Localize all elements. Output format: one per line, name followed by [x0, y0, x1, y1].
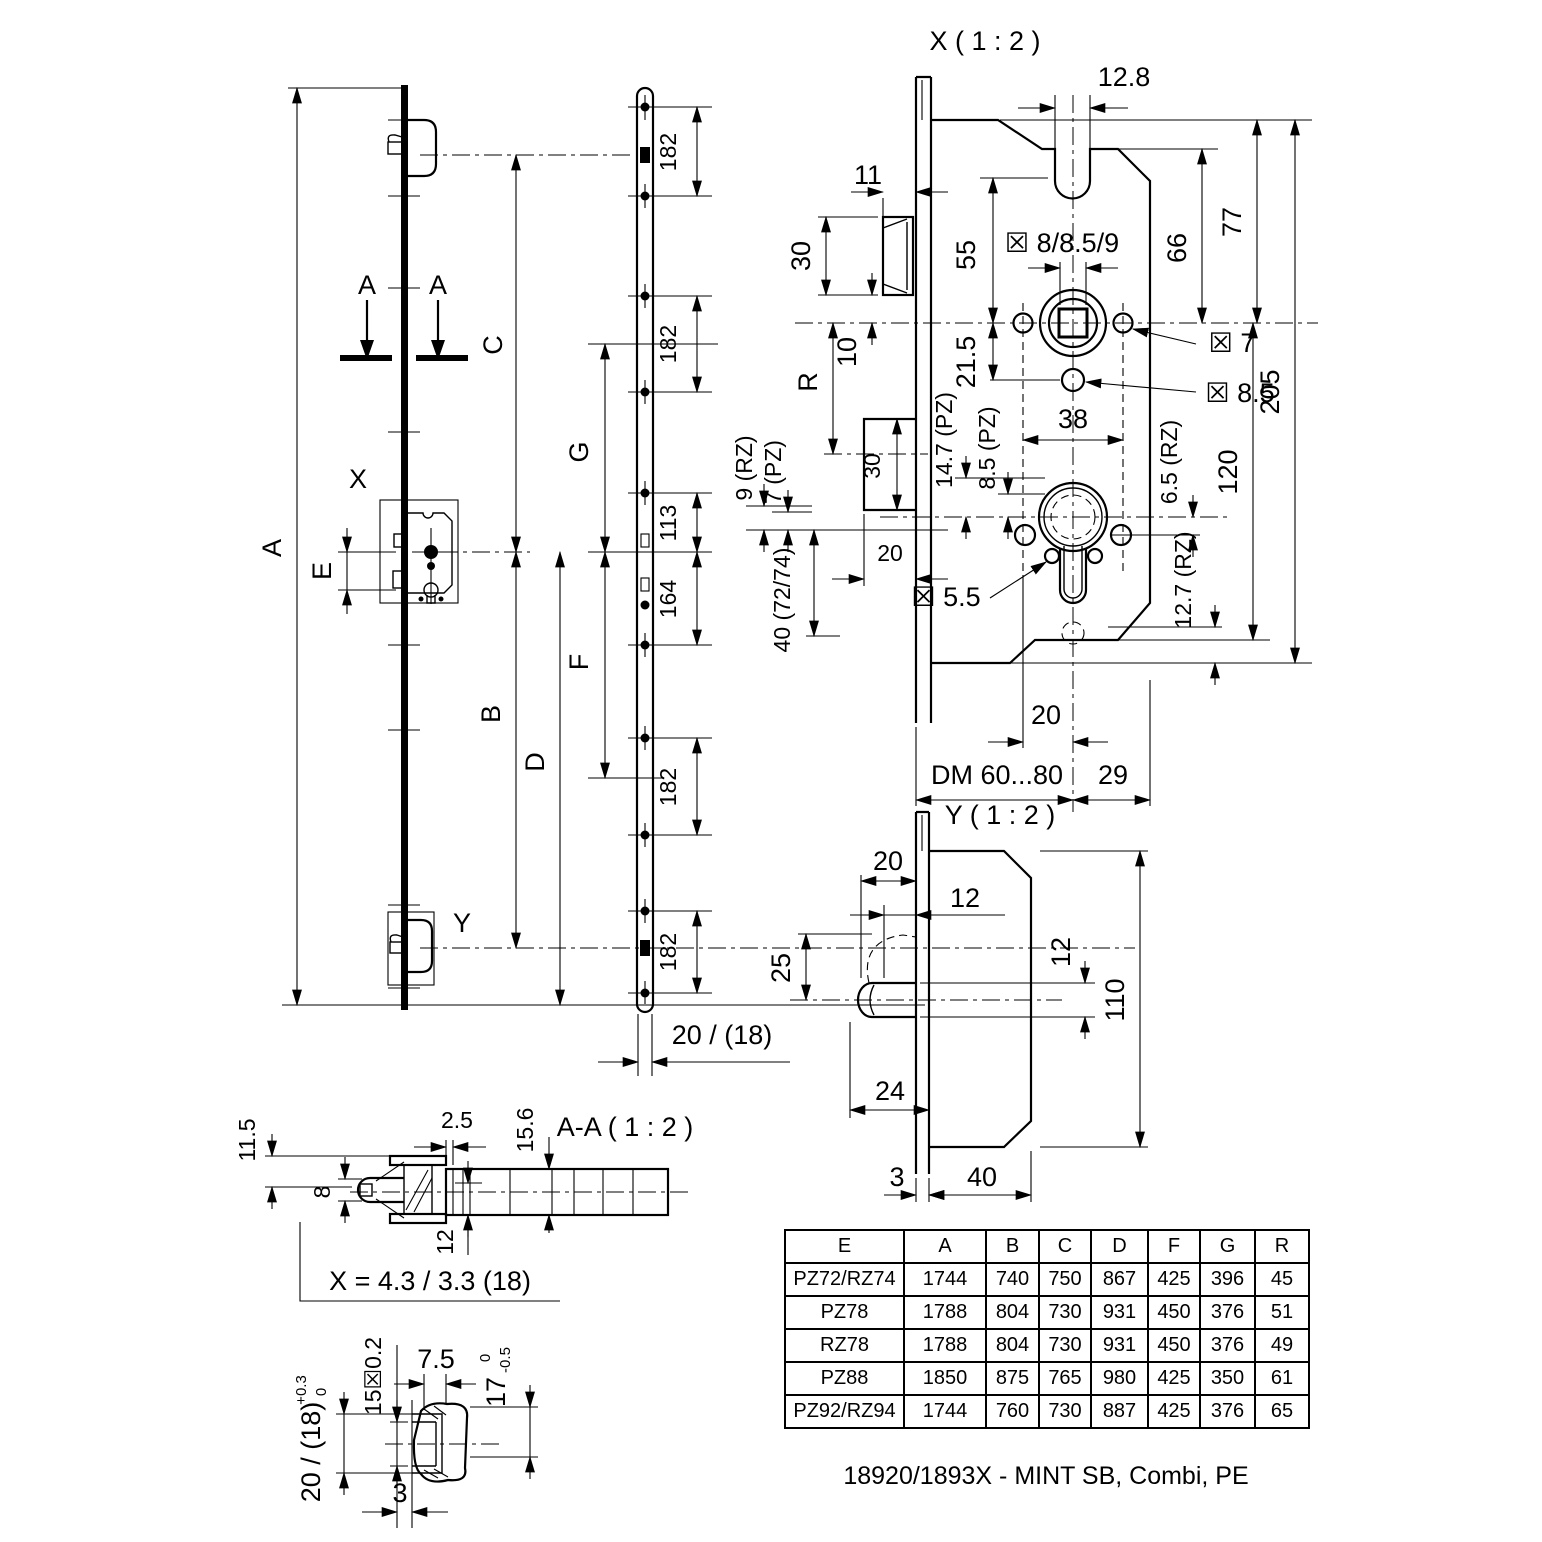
strip-dim-width: 20 / (18) — [672, 1020, 773, 1050]
det-tol17-top: 0 — [477, 1354, 494, 1362]
detail-y-label: Y — [453, 908, 471, 938]
col-header-A: A — [904, 1230, 986, 1263]
y-dim-20: 20 — [873, 846, 903, 876]
spec-table: E A B C D F G R PZ72/RZ74 1744 740 750 8… — [784, 1229, 1310, 1429]
x-dim-30-box: 30 — [859, 453, 885, 479]
table-cell: 730 — [1039, 1329, 1091, 1362]
y-dim-12-bolt: 12 — [1046, 937, 1076, 967]
table-cell: 376 — [1200, 1329, 1255, 1362]
x-dim-7-pz: 7 (PZ) — [760, 440, 786, 504]
table-cell: 1744 — [904, 1263, 986, 1296]
detail-x-label: X — [349, 464, 367, 494]
x-dim-12-7: 12.7 (RZ) — [1170, 531, 1196, 628]
aa-dim-11-5: 11.5 — [234, 1118, 260, 1161]
table-row: PZ72/RZ74 1744 740 750 867 425 396 45 — [785, 1263, 1309, 1296]
table-cell: 425 — [1148, 1395, 1200, 1428]
table-cell: PZ92/RZ94 — [785, 1395, 904, 1428]
x-dim-R: R — [793, 372, 823, 392]
drawing-caption: 18920/1893X - MINT SB, Combi, PE — [784, 1462, 1308, 1491]
drawing-canvas: A A X Y A C B D — [0, 0, 1542, 1542]
table-row: RZ78 1788 804 730 931 450 376 49 — [785, 1329, 1309, 1362]
x-dim-10: 10 — [832, 337, 862, 367]
detail-y-view: Y ( 1 : 2 ) 20 12 25 12 110 24 — [766, 800, 1148, 1202]
table-cell: 1788 — [904, 1296, 986, 1329]
table-cell: 740 — [986, 1263, 1039, 1296]
aa-dim-12: 12 — [432, 1229, 458, 1255]
dim-G: G — [564, 441, 594, 462]
table-cell: 730 — [1039, 1296, 1091, 1329]
table-cell: 45 — [1255, 1263, 1309, 1296]
x-dim-20-cyl: 20 — [1031, 700, 1061, 730]
x-dim-38: 38 — [1058, 404, 1088, 434]
groove-detail-view: 20 / (18) +0.3 0 15☒0.2 7.5 17 0 -0.5 3 — [293, 1337, 538, 1528]
col-header-C: C — [1039, 1230, 1091, 1263]
x-dim-21-5: 21.5 — [951, 336, 981, 389]
aa-title: A-A ( 1 : 2 ) — [557, 1112, 694, 1142]
x-view-title: X ( 1 : 2 ) — [929, 26, 1040, 56]
strip-dim-182-2: 182 — [655, 325, 681, 363]
col-header-R: R — [1255, 1230, 1309, 1263]
table-cell: 425 — [1148, 1362, 1200, 1395]
table-cell: 980 — [1091, 1362, 1148, 1395]
table-cell: 730 — [1039, 1395, 1091, 1428]
dim-C: C — [478, 335, 508, 355]
y-view-title: Y ( 1 : 2 ) — [945, 800, 1056, 830]
table-cell: 1744 — [904, 1395, 986, 1428]
table-row: PZ78 1788 804 730 931 450 376 51 — [785, 1296, 1309, 1329]
table-cell: 396 — [1200, 1263, 1255, 1296]
table-cell: 450 — [1148, 1329, 1200, 1362]
table-cell: 760 — [986, 1395, 1039, 1428]
col-header-B: B — [986, 1230, 1039, 1263]
x-dim-14-7: 14.7 (PZ) — [931, 392, 957, 488]
strip-dim-182-1: 182 — [655, 133, 681, 171]
det-tol-bot: 0 — [313, 1388, 330, 1396]
x-dim-9-rz: 9 (RZ) — [731, 435, 757, 500]
col-header-E: E — [785, 1230, 904, 1263]
table-cell: 425 — [1148, 1263, 1200, 1296]
section-aa-view: A-A ( 1 : 2 ) 11.5 8 2.5 15.6 — [234, 1107, 693, 1301]
table-cell: 750 — [1039, 1263, 1091, 1296]
y-dim-110: 110 — [1100, 978, 1130, 1021]
x-dim-6-5: 6.5 (RZ) — [1156, 420, 1182, 504]
x-dim-40: 40 (72/74) — [769, 548, 795, 653]
table-cell: 450 — [1148, 1296, 1200, 1329]
x-dim-20-box: 20 — [877, 540, 903, 566]
dim-D: D — [520, 752, 550, 772]
det-tol17-bot: -0.5 — [497, 1347, 514, 1373]
table-cell: 931 — [1091, 1296, 1148, 1329]
x-dim-11: 11 — [854, 160, 882, 190]
table-cell: 376 — [1200, 1395, 1255, 1428]
x-dia-5-5: ☒ 5.5 — [911, 582, 980, 612]
col-header-F: F — [1148, 1230, 1200, 1263]
aa-dim-8: 8 — [309, 1186, 335, 1199]
table-row: PZ88 1850 875 765 980 425 350 61 — [785, 1362, 1309, 1395]
aa-dim-2-5: 2.5 — [441, 1107, 473, 1133]
det-dim-15: 15☒0.2 — [360, 1337, 386, 1415]
table-cell: 61 — [1255, 1362, 1309, 1395]
detail-x-view: X ( 1 : 2 ) 12.8 ☒ 8/8.5/9 55 — [731, 26, 1318, 812]
dim-F: F — [564, 654, 594, 671]
strip-dim-164: 164 — [655, 580, 681, 619]
table-cell: RZ78 — [785, 1329, 904, 1362]
x-dim-29: 29 — [1098, 760, 1128, 790]
aa-dim-15-6: 15.6 — [512, 1108, 538, 1153]
col-header-G: G — [1200, 1230, 1255, 1263]
det-dim-3: 3 — [392, 1478, 407, 1508]
table-cell: 765 — [1039, 1362, 1091, 1395]
table-cell: 65 — [1255, 1395, 1309, 1428]
det-dim-20-18: 20 / (18) — [296, 1402, 326, 1503]
table-row: PZ92/RZ94 1744 760 730 887 425 376 65 — [785, 1395, 1309, 1428]
edge-strip-view: 182 182 113 164 182 182 20 / (18) — [598, 88, 790, 1076]
x-dim-205: 205 — [1255, 369, 1285, 414]
table-cell: 931 — [1091, 1329, 1148, 1362]
x-dim-12-8: 12.8 — [1098, 62, 1151, 92]
front-elevation-view: A A X Y A C B D — [257, 85, 1135, 1010]
x-dim-66: 66 — [1162, 233, 1192, 263]
det-dim-7-5: 7.5 — [417, 1344, 455, 1374]
dim-B: B — [476, 705, 506, 723]
table-cell: 51 — [1255, 1296, 1309, 1329]
table-cell: 804 — [986, 1296, 1039, 1329]
x-dim-30-top: 30 — [786, 241, 816, 271]
x-dim-77: 77 — [1217, 207, 1247, 237]
table-cell: 875 — [986, 1362, 1039, 1395]
x-dim-55: 55 — [951, 240, 981, 270]
x-dia-7: ☒ 7 — [1209, 328, 1256, 358]
y-dim-40: 40 — [967, 1162, 997, 1192]
table-cell: 1850 — [904, 1362, 986, 1395]
table-cell: 49 — [1255, 1329, 1309, 1362]
table-cell: 376 — [1200, 1296, 1255, 1329]
x-dim-8-5-pz: 8.5 (PZ) — [974, 406, 1000, 489]
table-cell: 1788 — [904, 1329, 986, 1362]
section-label-right: A — [429, 270, 447, 300]
det-dim-17: 17 — [481, 1377, 511, 1407]
y-dim-3: 3 — [889, 1162, 904, 1192]
table-header-row: E A B C D F G R — [785, 1230, 1309, 1263]
aa-callout-x: X = 4.3 / 3.3 (18) — [329, 1266, 531, 1296]
col-header-D: D — [1091, 1230, 1148, 1263]
table-cell: 887 — [1091, 1395, 1148, 1428]
table-cell: PZ88 — [785, 1362, 904, 1395]
y-dim-12-top: 12 — [950, 883, 980, 913]
dim-A: A — [257, 539, 287, 557]
dim-E: E — [307, 562, 337, 580]
y-dim-24: 24 — [875, 1076, 905, 1106]
strip-dim-182-4: 182 — [655, 933, 681, 971]
table-cell: PZ78 — [785, 1296, 904, 1329]
det-tol-top: +0.3 — [293, 1375, 310, 1405]
y-dim-25: 25 — [766, 953, 796, 983]
strip-dim-113: 113 — [655, 505, 681, 542]
section-label-left: A — [358, 270, 376, 300]
x-dim-120: 120 — [1213, 449, 1243, 494]
table-cell: 804 — [986, 1329, 1039, 1362]
x-dim-square: ☒ 8/8.5/9 — [1005, 228, 1119, 258]
table-cell: 867 — [1091, 1263, 1148, 1296]
table-cell: 350 — [1200, 1362, 1255, 1395]
technical-drawing: A A X Y A C B D — [0, 0, 1542, 1542]
x-dim-dm: DM 60...80 — [931, 760, 1063, 790]
strip-dim-182-3: 182 — [655, 768, 681, 806]
table-cell: PZ72/RZ74 — [785, 1263, 904, 1296]
